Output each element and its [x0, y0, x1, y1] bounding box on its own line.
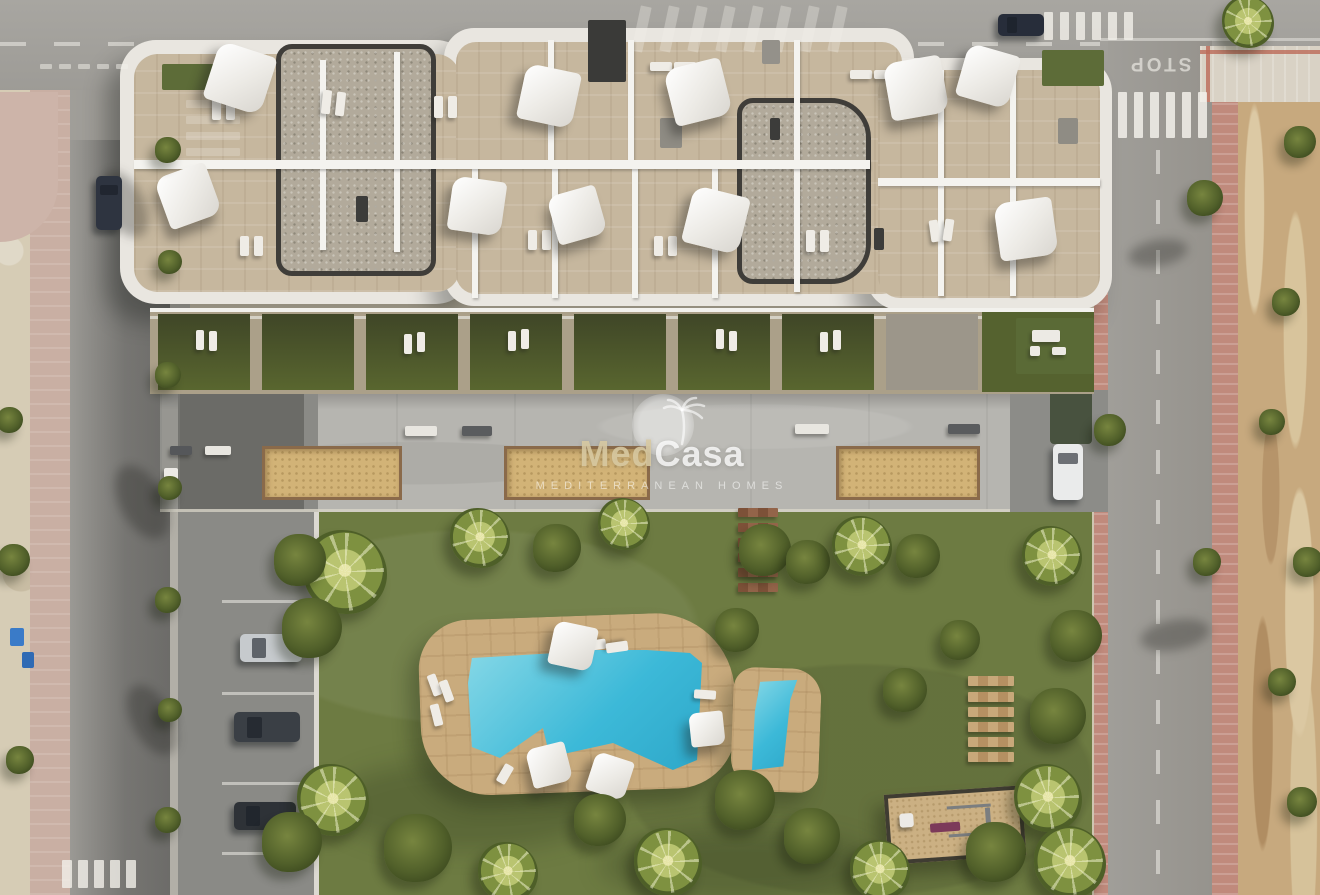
palm-tree	[598, 498, 650, 550]
bush	[1050, 610, 1102, 662]
bush	[1284, 126, 1316, 158]
bush	[262, 812, 322, 872]
bush	[158, 698, 182, 722]
palm-tree	[450, 508, 510, 568]
aerial-residential-complex-render: STOP MedCasa MEDITERRANEAN HOMES	[0, 0, 1320, 895]
bush	[1287, 787, 1317, 817]
bush	[0, 407, 23, 433]
bush	[1193, 548, 1221, 576]
bush	[1293, 547, 1320, 577]
bush	[155, 137, 181, 163]
bush	[715, 770, 775, 830]
palm-tree	[1222, 0, 1274, 48]
bush	[883, 668, 927, 712]
palm-tree	[478, 842, 538, 895]
bush	[155, 362, 181, 388]
bush	[533, 524, 581, 572]
bush	[155, 587, 181, 613]
vegetation-layer	[0, 0, 1320, 895]
palm-tree	[634, 828, 702, 895]
bush	[0, 544, 30, 576]
bush	[574, 794, 626, 846]
palm-tree	[1014, 764, 1082, 832]
palm-tree	[832, 516, 892, 576]
bush	[1272, 288, 1300, 316]
palm-tree	[1022, 526, 1082, 586]
palm-tree	[1034, 826, 1106, 895]
bush	[1187, 180, 1223, 216]
bush	[6, 746, 34, 774]
bush	[784, 808, 840, 864]
bush	[155, 807, 181, 833]
bush	[715, 608, 759, 652]
bush	[1030, 688, 1086, 744]
bush	[966, 822, 1026, 882]
bush	[1259, 409, 1285, 435]
bush	[1268, 668, 1296, 696]
bush	[940, 620, 980, 660]
bush	[384, 814, 452, 882]
bush	[282, 598, 342, 658]
bush	[1094, 414, 1126, 446]
bush	[158, 250, 182, 274]
bush	[786, 540, 830, 584]
bush	[739, 524, 791, 576]
bush	[896, 534, 940, 578]
bush	[158, 476, 182, 500]
palm-tree	[850, 840, 910, 895]
